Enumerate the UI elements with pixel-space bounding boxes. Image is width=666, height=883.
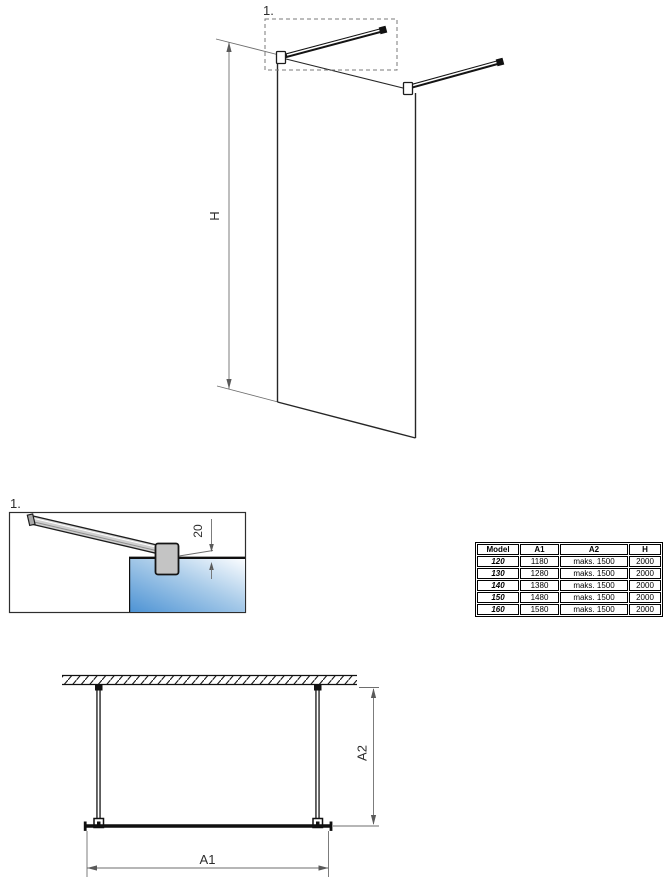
a1-arrow-right bbox=[319, 865, 329, 870]
model-cell: 130 bbox=[477, 568, 519, 579]
a2-cell: maks. 1500 bbox=[560, 604, 628, 615]
wall-section-hatch bbox=[62, 675, 357, 685]
depth-dimension-label: A2 bbox=[355, 745, 370, 761]
detail-marker-label-view: 1. bbox=[10, 496, 21, 511]
model-cell: 160 bbox=[477, 604, 519, 615]
model-cell: 120 bbox=[477, 556, 519, 567]
h-cell: 2000 bbox=[629, 568, 661, 579]
model-cell: 150 bbox=[477, 592, 519, 603]
detail-bracket bbox=[156, 544, 179, 575]
size-table-header-a1: A1 bbox=[520, 544, 559, 555]
a2-cell: maks. 1500 bbox=[560, 556, 628, 567]
a2-cell: maks. 1500 bbox=[560, 580, 628, 591]
a1-cell: 1180 bbox=[520, 556, 559, 567]
a1-cell: 1280 bbox=[520, 568, 559, 579]
detail-marker-label-main: 1. bbox=[263, 3, 274, 18]
a1-cell: 1580 bbox=[520, 604, 559, 615]
support-bar-2-highlight bbox=[411, 62, 498, 86]
a2-cell: maks. 1500 bbox=[560, 592, 628, 603]
h-cell: 2000 bbox=[629, 556, 661, 567]
h-arrow-up bbox=[226, 42, 231, 52]
support-bar-1-highlight bbox=[287, 30, 381, 55]
glass-top-edge bbox=[286, 59, 407, 89]
glass-bracket-1 bbox=[277, 52, 286, 64]
size-table: Model A1 A2 H 120 1180 maks. 1500 2000 1… bbox=[475, 542, 663, 617]
bar-offset-dimension-label: 20 bbox=[191, 524, 205, 538]
a2-arrow-up bbox=[371, 688, 376, 698]
h-cell: 2000 bbox=[629, 580, 661, 591]
table-row: 160 1580 maks. 1500 2000 bbox=[477, 604, 661, 615]
a1-cell: 1380 bbox=[520, 580, 559, 591]
plan-wall-anchor-left bbox=[95, 684, 103, 691]
technical-drawing-canvas: H 1. 1. bbox=[0, 0, 666, 883]
a2-cell: maks. 1500 bbox=[560, 568, 628, 579]
h-extension-line-bottom bbox=[217, 386, 278, 402]
h-extension-line-top bbox=[216, 39, 283, 56]
size-table-header-model: Model bbox=[477, 544, 519, 555]
plan-view: A1 A2 bbox=[62, 675, 379, 877]
table-row: 140 1380 maks. 1500 2000 bbox=[477, 580, 661, 591]
table-row: 120 1180 maks. 1500 2000 bbox=[477, 556, 661, 567]
h-cell: 2000 bbox=[629, 604, 661, 615]
size-table-header-h: H bbox=[629, 544, 661, 555]
technical-drawing-page: H 1. 1. bbox=[0, 0, 666, 883]
isometric-view: H 1. bbox=[207, 3, 504, 438]
detail-glass bbox=[129, 557, 245, 612]
h-arrow-down bbox=[226, 379, 231, 389]
height-dimension-label: H bbox=[207, 211, 222, 220]
glass-bottom-edge bbox=[278, 402, 416, 438]
width-dimension-label: A1 bbox=[200, 852, 216, 867]
plan-glass-end-cap-left bbox=[84, 822, 87, 831]
size-table-header-row: Model A1 A2 H bbox=[477, 544, 661, 555]
table-row: 150 1480 maks. 1500 2000 bbox=[477, 592, 661, 603]
plan-glass-end-cap-right bbox=[330, 822, 333, 831]
glass-bracket-2 bbox=[404, 83, 413, 95]
a2-arrow-down bbox=[371, 815, 376, 825]
table-row: 130 1280 maks. 1500 2000 bbox=[477, 568, 661, 579]
detail-view-1: 1. 20 bbox=[10, 496, 246, 613]
a1-arrow-left bbox=[87, 865, 97, 870]
size-table-header-a2: A2 bbox=[560, 544, 628, 555]
model-cell: 140 bbox=[477, 580, 519, 591]
a1-cell: 1480 bbox=[520, 592, 559, 603]
plan-wall-anchor-right bbox=[314, 684, 322, 691]
h-cell: 2000 bbox=[629, 592, 661, 603]
